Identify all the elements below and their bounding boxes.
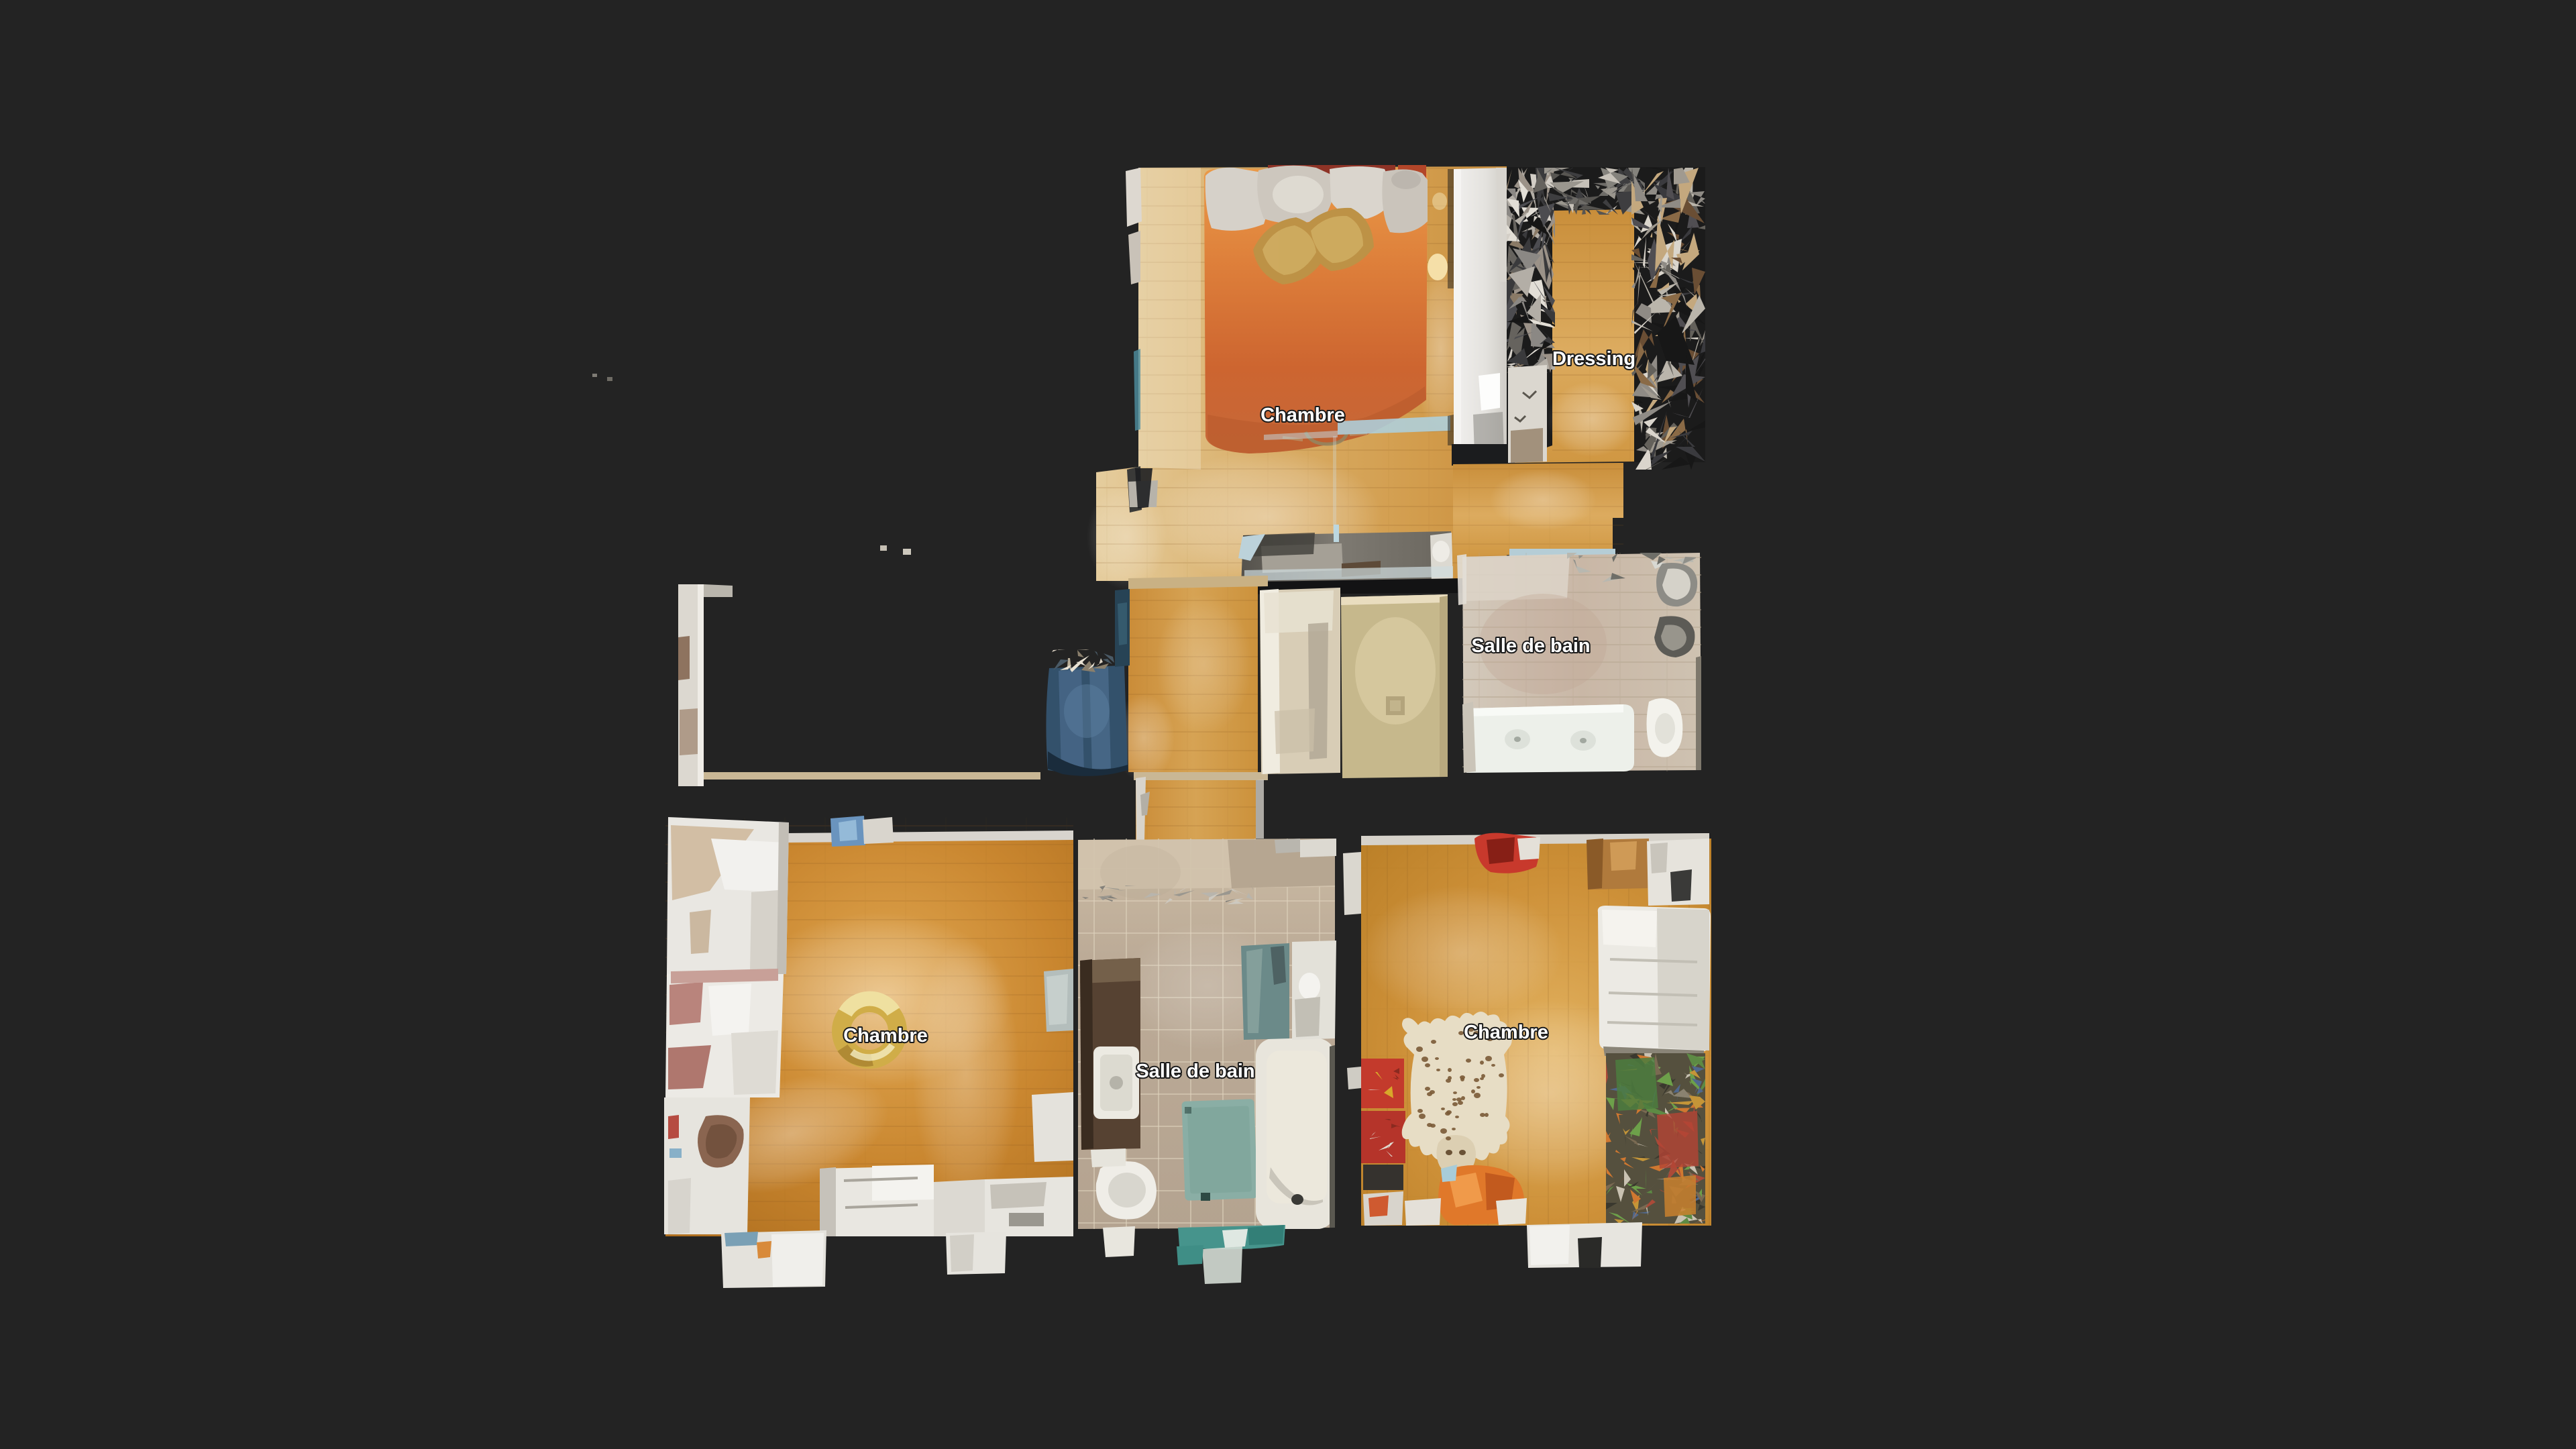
svg-text:Dressing: Dressing <box>1552 348 1635 370</box>
svg-text:Chambre: Chambre <box>1260 405 1345 426</box>
svg-text:Chambre: Chambre <box>843 1025 928 1046</box>
svg-text:Chambre: Chambre <box>1464 1022 1548 1043</box>
svg-text:Salle de bain: Salle de bain <box>1136 1061 1254 1082</box>
svg-text:Salle de bain: Salle de bain <box>1471 635 1590 657</box>
